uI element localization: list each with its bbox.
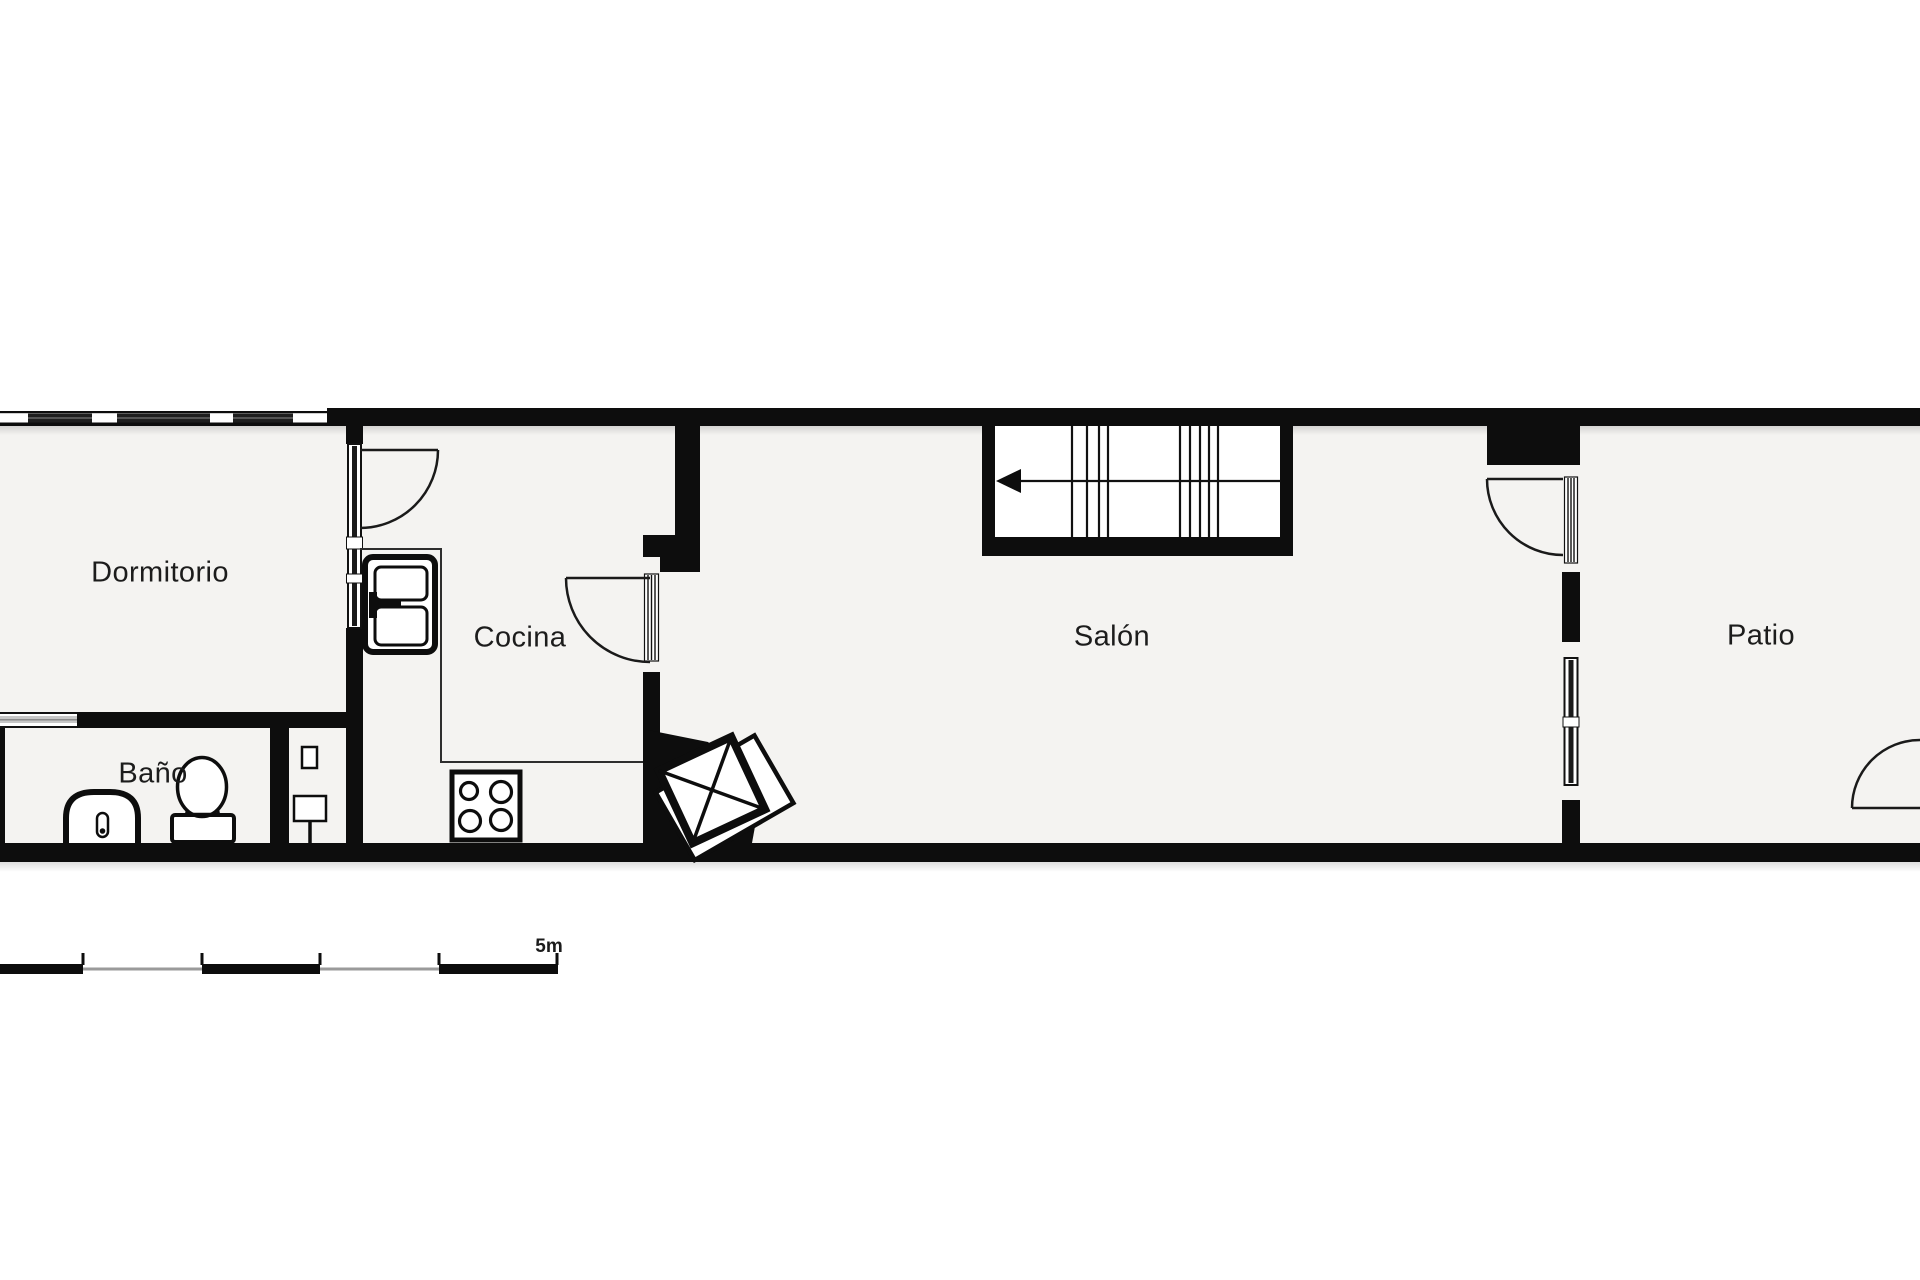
window-glazing-highlight — [28, 417, 293, 419]
dorm-cocina-wall-top-stub — [346, 408, 363, 444]
scale-bar-label: 5m — [535, 936, 562, 958]
stair-left-wall — [982, 426, 995, 556]
bottom-wall-shadow — [0, 862, 1920, 872]
staircase — [982, 426, 1293, 556]
dorm-bano-wall — [77, 712, 348, 728]
chimney-block — [1487, 408, 1580, 465]
salon-patio-wall-mid — [1562, 572, 1580, 642]
bano-right-wall — [270, 728, 289, 843]
glazed-partition-dorm-cocina — [347, 444, 363, 628]
window-band-top-edge — [0, 411, 327, 413]
salon-patio-wall-bottom-stub — [1562, 800, 1580, 843]
room-label-salon: Salón — [1074, 621, 1150, 654]
scale-bar — [0, 953, 559, 974]
top-wall — [327, 408, 1920, 426]
stair-bottom-wall — [982, 537, 1293, 556]
room-label-bano: Baño — [118, 758, 187, 791]
fridge — [365, 557, 435, 652]
salon-door-glazing — [643, 557, 660, 672]
stove — [452, 772, 520, 840]
bidet — [66, 792, 138, 843]
stair-right-wall — [1280, 426, 1293, 556]
room-label-cocina: Cocina — [474, 622, 567, 655]
bottom-wall — [0, 843, 1920, 862]
fridge-handle — [369, 592, 377, 618]
floor-plan-drawing — [0, 0, 1920, 1280]
scale-bar-ticks — [82, 953, 559, 965]
floor-plan-page: Dormitorio Baño Cocina Salón Patio 5m — [0, 0, 1920, 1280]
window-dorm-bano — [0, 712, 77, 728]
room-label-patio: Patio — [1727, 620, 1795, 653]
dorm-cocina-wall-bottom-stub — [346, 628, 363, 843]
window-band-top — [0, 411, 327, 426]
patio-window — [1563, 658, 1579, 785]
top-wall-shadow — [0, 426, 1920, 435]
window-band-bottom-edge — [0, 423, 327, 427]
bano-left-wall-cut — [0, 728, 5, 843]
room-label-dormitorio: Dormitorio — [91, 557, 229, 590]
